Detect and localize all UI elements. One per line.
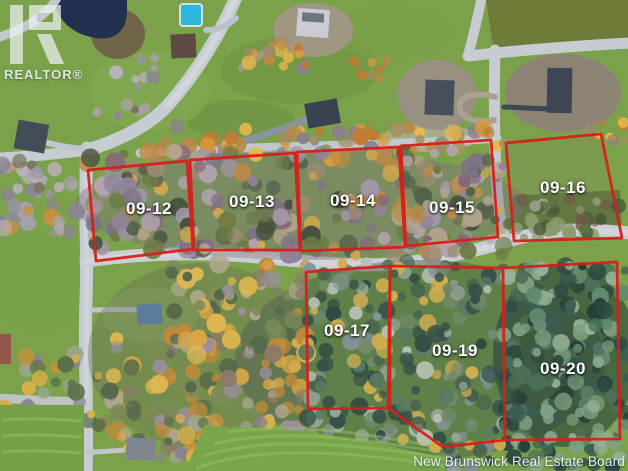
realtor-r-icon [8, 4, 66, 66]
lot-label-09-17: 09-17 [324, 321, 370, 341]
realtor-logo: REALTOR® [4, 4, 84, 82]
lot-label-09-12: 09-12 [126, 199, 172, 219]
lot-label-09-16: 09-16 [540, 178, 586, 198]
lot-label-09-20: 09-20 [540, 359, 586, 379]
pool [180, 4, 202, 26]
realtor-logo-text: REALTOR® [4, 67, 84, 82]
lot-label-09-19: 09-19 [432, 341, 478, 361]
watermark-text: New Brunswick Real Estate Board [413, 454, 625, 469]
lot-label-09-15: 09-15 [429, 198, 475, 218]
aerial-photo: 09-12 09-13 09-14 09-15 09-16 09-17 09-1… [0, 0, 628, 471]
lot-label-09-13: 09-13 [229, 192, 275, 212]
lot-label-09-14: 09-14 [330, 191, 376, 211]
aerial-scene [0, 0, 628, 471]
